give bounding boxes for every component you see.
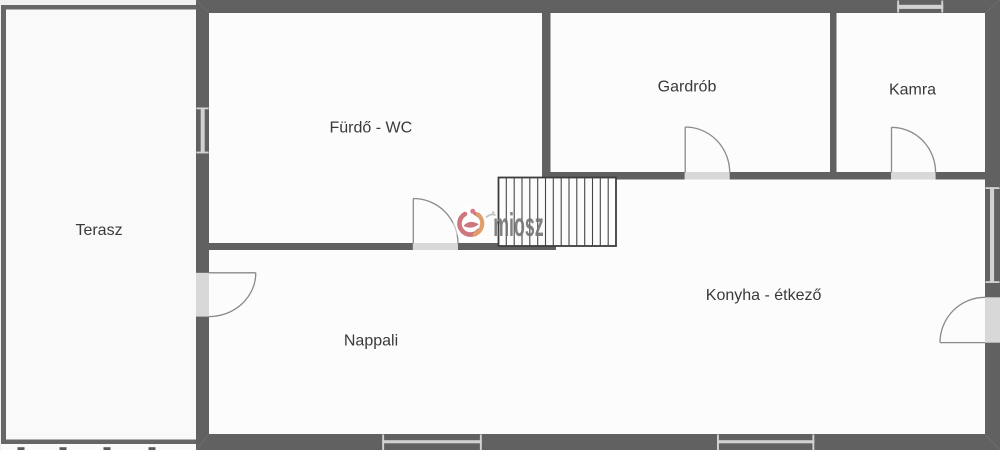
svg-text:Terasz: Terasz	[75, 222, 122, 239]
svg-text:miosz: miosz	[493, 206, 543, 243]
svg-text:Gardrób: Gardrób	[658, 79, 717, 96]
svg-text:Fürdő - WC: Fürdő - WC	[329, 119, 412, 136]
svg-text:Nappali: Nappali	[344, 332, 398, 349]
svg-text:Kamra: Kamra	[889, 82, 936, 99]
svg-text:Konyha - étkező: Konyha - étkező	[706, 287, 822, 304]
